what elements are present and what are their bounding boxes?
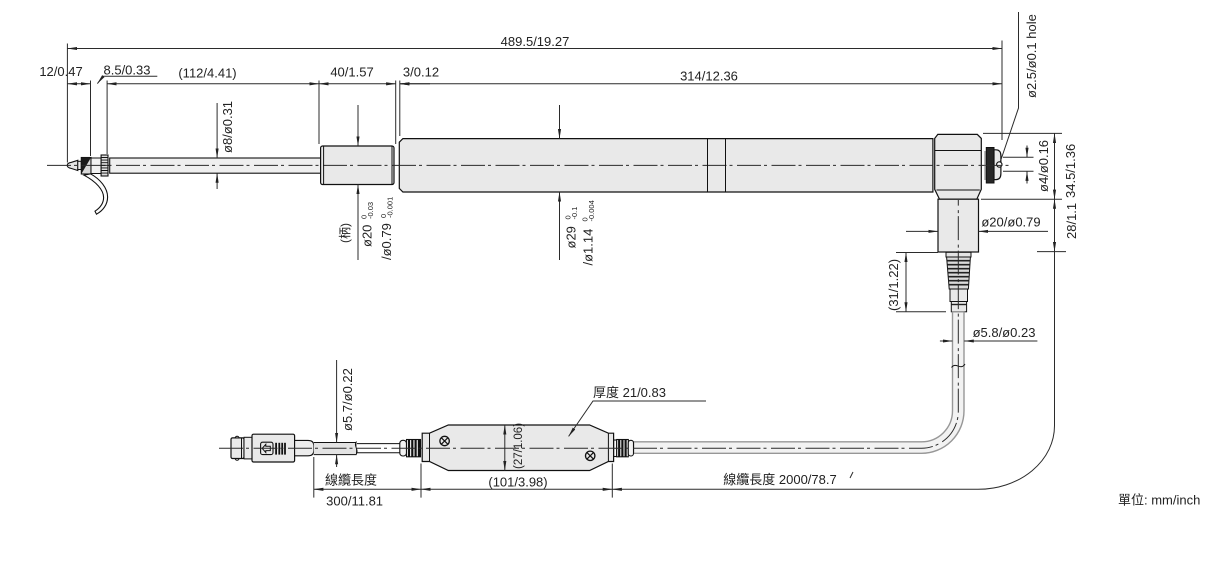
- svg-text:3/0.12: 3/0.12: [403, 65, 439, 80]
- svg-text:單位: mm/inch: 單位: mm/inch: [1118, 493, 1200, 508]
- svg-text:厚度 21/0.83: 厚度 21/0.83: [593, 385, 666, 400]
- svg-text:ø5.8/ø0.23: ø5.8/ø0.23: [973, 325, 1036, 340]
- svg-text:線纜長度 2000/78.7: 線纜長度 2000/78.7: [723, 472, 836, 487]
- svg-text:(柄): (柄): [338, 223, 352, 243]
- svg-text:8.5/0.33: 8.5/0.33: [104, 63, 151, 78]
- svg-text:ø20: ø20: [360, 225, 375, 247]
- svg-text:34.5/1.36: 34.5/1.36: [1063, 144, 1078, 198]
- svg-text:(27/1.06): (27/1.06): [513, 423, 525, 469]
- svg-text:ø2.5/ø0.1 hole: ø2.5/ø0.1 hole: [1024, 14, 1039, 98]
- svg-text:12/0.47: 12/0.47: [39, 64, 82, 79]
- svg-text:線纜長度: 線纜長度: [325, 473, 377, 488]
- svg-text:(112/4.41): (112/4.41): [178, 66, 236, 81]
- svg-text:489.5/19.27: 489.5/19.27: [501, 34, 570, 49]
- svg-text:(31/1.22): (31/1.22): [886, 259, 901, 311]
- svg-text:(101/3.98): (101/3.98): [488, 475, 547, 490]
- svg-text:-0.1: -0.1: [570, 207, 579, 220]
- svg-text:ø4/ø0.16: ø4/ø0.16: [1036, 140, 1051, 192]
- svg-text:ø20/ø0.79: ø20/ø0.79: [981, 215, 1040, 230]
- svg-text:/ø1.14: /ø1.14: [581, 229, 596, 266]
- svg-text:ø29: ø29: [564, 226, 579, 248]
- svg-text:/ø0.79: /ø0.79: [379, 223, 394, 260]
- svg-text:-0.03: -0.03: [366, 202, 375, 219]
- svg-text:ø5.7/ø0.22: ø5.7/ø0.22: [340, 368, 355, 431]
- svg-text:-0.001: -0.001: [386, 197, 395, 218]
- svg-text:-0.004: -0.004: [587, 200, 596, 221]
- svg-text:314/12.36: 314/12.36: [680, 68, 738, 83]
- svg-text:300/11.81: 300/11.81: [326, 494, 383, 509]
- svg-text:40/1.57: 40/1.57: [330, 65, 373, 80]
- svg-text:28/1.1: 28/1.1: [1064, 203, 1079, 239]
- svg-text:ø8/ø0.31: ø8/ø0.31: [220, 101, 235, 153]
